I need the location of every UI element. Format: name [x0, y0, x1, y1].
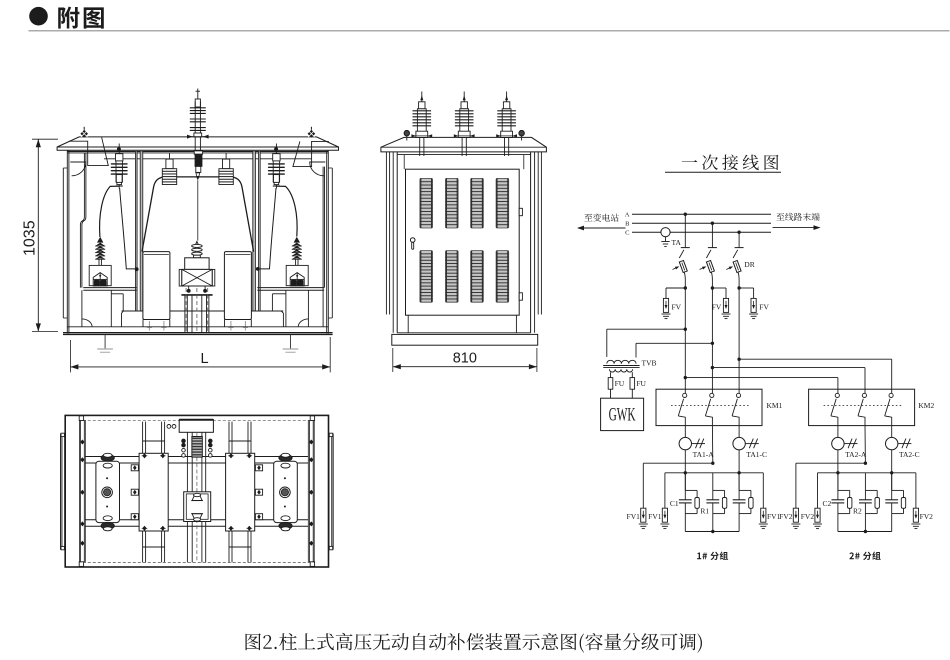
svg-text:C2: C2 [823, 499, 832, 508]
svg-text:B: B [625, 221, 630, 228]
svg-text:FV1: FV1 [648, 512, 662, 521]
svg-text:TA2-A: TA2-A [845, 450, 867, 459]
svg-text:FV2: FV2 [920, 512, 934, 521]
svg-text:810: 810 [453, 351, 477, 367]
svg-text:TA1-C: TA1-C [746, 450, 767, 459]
svg-text:L: L [200, 351, 208, 367]
svg-text:C1: C1 [670, 499, 679, 508]
svg-text:C: C [625, 230, 629, 237]
svg-text:GWK: GWK [609, 404, 636, 425]
svg-text:R2: R2 [853, 506, 862, 515]
svg-text:KM1: KM1 [767, 401, 783, 410]
svg-text:TA1-A: TA1-A [693, 450, 715, 459]
svg-text:FV: FV [759, 303, 769, 312]
svg-text:FV: FV [672, 303, 682, 312]
svg-text:FV: FV [712, 303, 722, 312]
svg-text:R1: R1 [700, 506, 709, 515]
svg-text:TA: TA [672, 238, 682, 247]
svg-text:DR: DR [744, 260, 754, 269]
svg-text:KM2: KM2 [918, 401, 934, 410]
svg-text:TA2-C: TA2-C [899, 450, 920, 459]
svg-text:A: A [625, 212, 630, 219]
svg-text:FV2: FV2 [779, 512, 793, 521]
svg-text:FV2: FV2 [801, 512, 815, 521]
svg-text:FV1: FV1 [627, 512, 641, 521]
svg-text:FU: FU [615, 379, 625, 388]
svg-text:TVB: TVB [642, 359, 657, 368]
svg-text:1035: 1035 [22, 220, 39, 256]
svg-text:FU: FU [636, 379, 646, 388]
